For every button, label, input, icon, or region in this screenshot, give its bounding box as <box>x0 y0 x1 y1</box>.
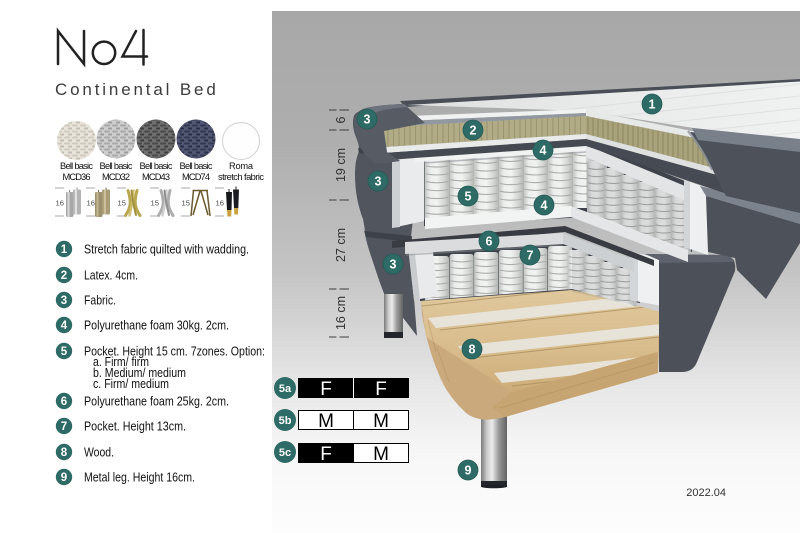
svg-text:5: 5 <box>465 189 472 203</box>
svg-text:5b: 5b <box>279 415 292 427</box>
svg-text:4: 4 <box>541 198 548 212</box>
svg-text:2: 2 <box>470 123 477 137</box>
svg-text:16 cm: 16 cm <box>334 296 348 330</box>
svg-text:9: 9 <box>465 463 472 477</box>
svg-text:5c: 5c <box>279 447 291 459</box>
svg-text:M: M <box>373 444 389 465</box>
svg-text:3: 3 <box>375 174 382 188</box>
svg-text:7: 7 <box>527 248 534 262</box>
svg-text:8: 8 <box>469 342 476 356</box>
svg-text:M: M <box>373 411 389 432</box>
svg-text:3: 3 <box>390 257 397 271</box>
svg-text:3: 3 <box>364 112 371 126</box>
svg-text:F: F <box>375 379 387 400</box>
svg-text:27 cm: 27 cm <box>334 228 348 262</box>
svg-text:4: 4 <box>540 143 547 157</box>
svg-text:F: F <box>320 379 332 400</box>
svg-text:6: 6 <box>334 116 348 123</box>
svg-text:2022.04: 2022.04 <box>686 487 726 499</box>
svg-text:6: 6 <box>486 234 493 248</box>
svg-text:1: 1 <box>649 97 656 111</box>
svg-text:5a: 5a <box>279 383 292 395</box>
svg-text:M: M <box>318 411 334 432</box>
svg-text:F: F <box>320 444 332 465</box>
svg-text:19 cm: 19 cm <box>334 148 348 182</box>
